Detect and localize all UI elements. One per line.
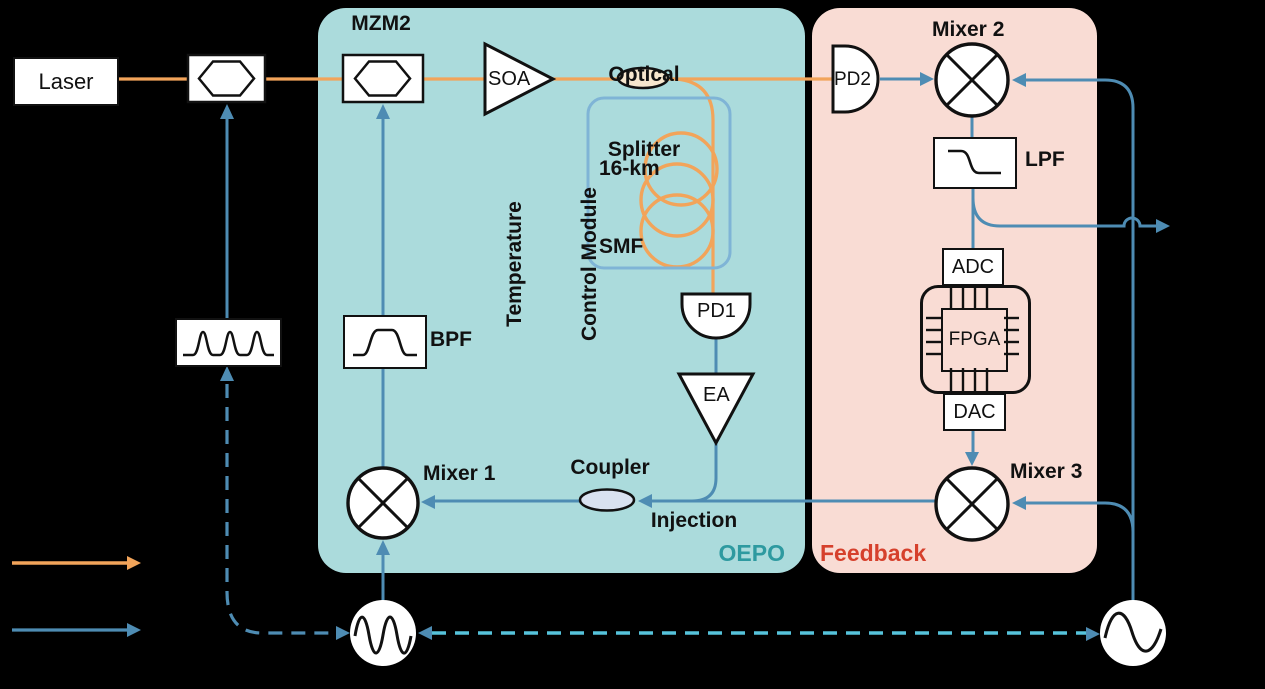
pd1-label: PD1: [697, 300, 736, 323]
mixer3-label: Mixer 3: [1010, 460, 1082, 484]
diagram-canvas: Laser ADC FPGA DAC MZM2 SOA Optical Spli…: [0, 0, 1265, 689]
arrow-into-mixer2-left: [920, 72, 934, 86]
temperature-control-module-label: Temperature Control Module: [452, 169, 652, 359]
lpf-label: LPF: [1025, 148, 1065, 172]
laser-label: Laser: [38, 69, 93, 95]
tcm-label-line1: Temperature: [502, 169, 527, 359]
oscillator1-icon: [350, 600, 416, 666]
mixer2-icon: [936, 44, 1008, 116]
coupler-label: Coupler: [562, 456, 658, 480]
pd2-label: PD2: [834, 69, 871, 91]
ea-to-injection-line: [692, 443, 716, 501]
arrow-into-osc1-left: [336, 626, 350, 640]
feedback-region-label: Feedback: [820, 540, 950, 567]
arrow-into-osc1-right: [418, 626, 432, 640]
arrow-into-pulsebox: [220, 366, 234, 381]
oscillator2-icon: [1100, 600, 1166, 666]
soa-label: SOA: [488, 68, 530, 91]
lpf-box: [933, 137, 1017, 189]
arrow-into-coupler: [638, 494, 652, 508]
dac-box: DAC: [943, 393, 1006, 431]
dac-label: DAC: [953, 401, 995, 424]
tcm-label-line2: Control Module: [577, 169, 602, 359]
fpga-box: FPGA: [941, 308, 1008, 372]
adc-label: ADC: [952, 256, 994, 279]
arrow-into-mixer3-top: [965, 452, 979, 466]
mixer1-label: Mixer 1: [423, 462, 495, 486]
lowpass-curve-icon: [935, 139, 1015, 187]
pulse-train-icon: [179, 322, 278, 363]
arrow-into-mzm2: [376, 104, 390, 119]
ea-label: EA: [703, 384, 730, 407]
lpf-output-branch: [973, 198, 1156, 226]
adc-box: ADC: [942, 248, 1004, 286]
pulse-waveform-box: [175, 318, 282, 367]
arrow-into-osc2-left: [1086, 627, 1100, 641]
rf-output-arrow: [1156, 219, 1170, 233]
osc2-to-mixer3-branch: [1022, 503, 1133, 532]
bpf-box: [343, 315, 427, 369]
mzm2-label: MZM2: [331, 12, 431, 36]
arrow-into-mixer1-bottom: [376, 540, 390, 555]
optical-splitter-label-line1: Optical: [594, 62, 694, 87]
oepo-region-label: OEPO: [700, 540, 785, 567]
mixer1-icon: [348, 468, 418, 538]
mzm1-icon: [188, 55, 265, 102]
arrow-into-mixer2-right: [1012, 73, 1026, 87]
arrow-into-mixer1-right: [421, 495, 435, 509]
bpf-label: BPF: [430, 328, 472, 352]
arrow-into-mzm1: [220, 104, 234, 119]
arrow-into-mixer3-right: [1012, 496, 1026, 510]
mixer3-icon: [936, 468, 1008, 540]
coupler-icon: [580, 490, 634, 511]
osc1-to-mzm1-dashed: [227, 384, 336, 633]
legend-optical-arrow: [12, 556, 141, 570]
legend-electrical-arrowhead: [127, 623, 141, 637]
laser-box: Laser: [13, 57, 119, 106]
bandpass-curve-icon: [345, 317, 425, 367]
mixer2-label: Mixer 2: [932, 18, 1004, 42]
fpga-label: FPGA: [949, 329, 1001, 351]
mzm2-icon: [343, 55, 423, 102]
injection-label: Injection: [646, 509, 742, 533]
